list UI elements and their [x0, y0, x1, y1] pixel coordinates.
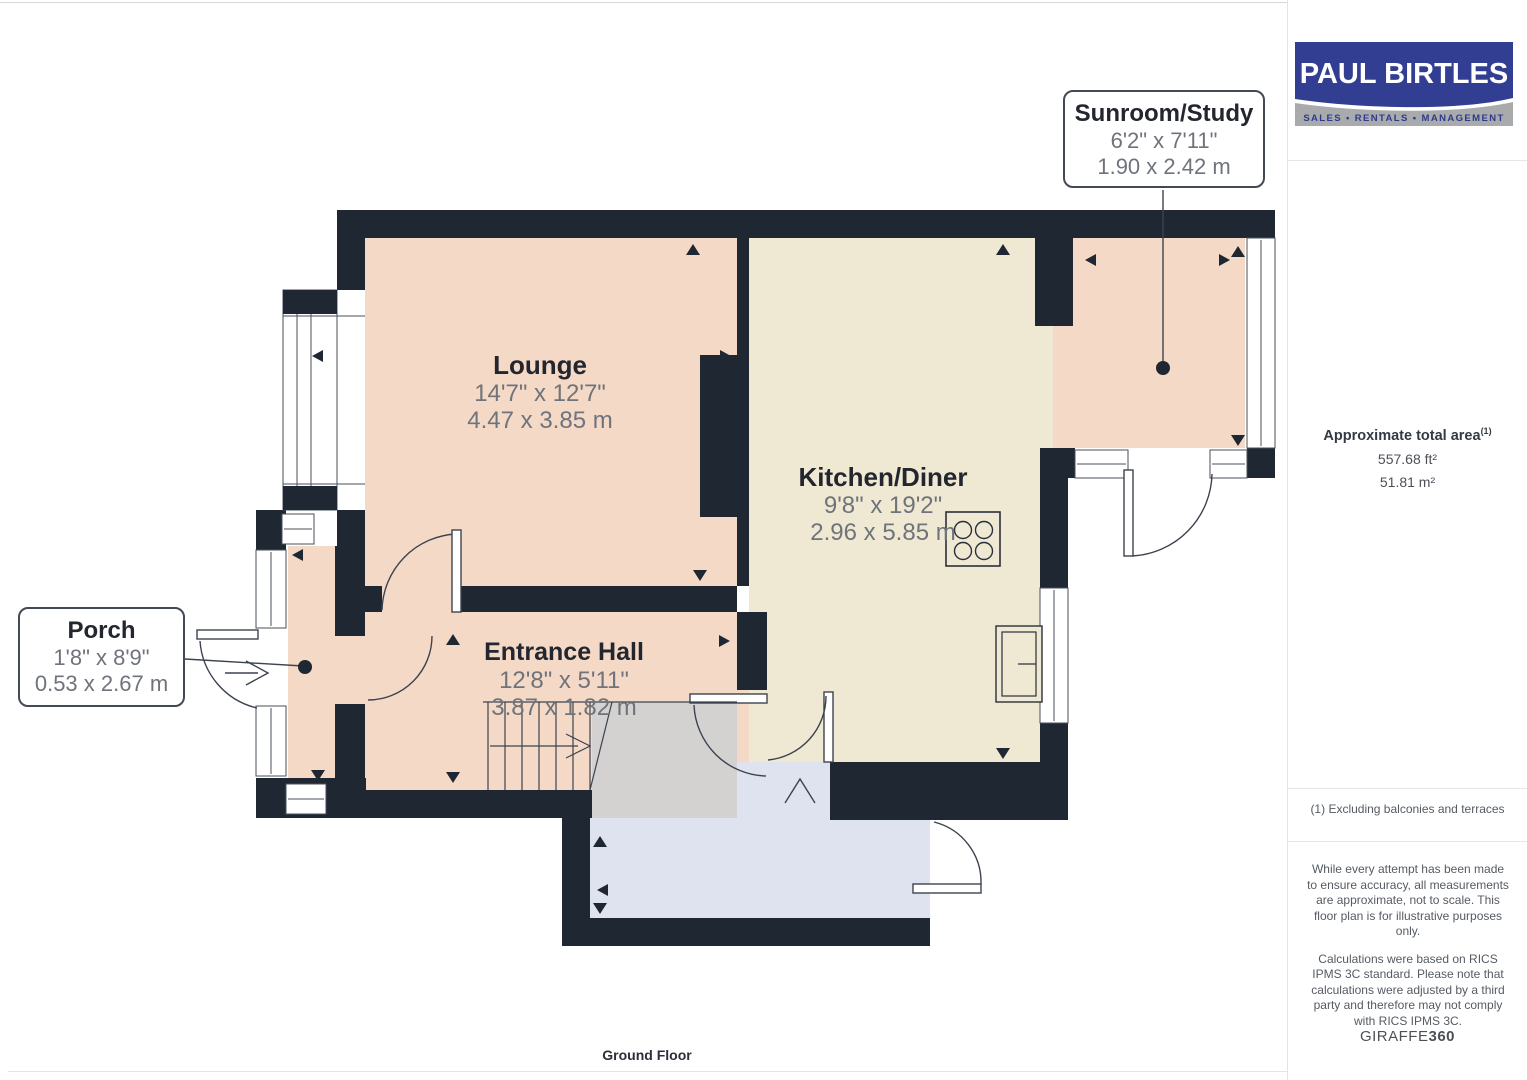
- agency-logo: PAUL BIRTLES SALES • RENTALS • MANAGEMEN…: [1295, 42, 1513, 126]
- wall: [335, 546, 365, 636]
- info-sidebar: PAUL BIRTLES SALES • RENTALS • MANAGEMEN…: [1287, 0, 1527, 1080]
- wall: [830, 762, 1068, 820]
- total-area-m: 51.81 m²: [1288, 474, 1527, 490]
- wall: [365, 586, 382, 612]
- total-area-block: Approximate total area(1) 557.68 ft² 51.…: [1288, 426, 1527, 490]
- wall: [562, 918, 930, 946]
- room-dim-imperial: 6'2" x 7'11": [1065, 128, 1263, 154]
- wall: [1035, 238, 1073, 326]
- bay-cap: [283, 290, 337, 314]
- callout-sunroom: Sunroom/Study 6'2" x 7'11" 1.90 x 2.42 m: [1063, 90, 1265, 188]
- sidebar-divider: [1288, 841, 1527, 842]
- sunroom-floor: [1053, 238, 1245, 448]
- bay-cap: [283, 486, 337, 510]
- area-footnote: (1) Excluding balconies and terraces: [1288, 802, 1527, 816]
- floorplan-page: Lounge 14'7" x 12'7" 4.47 x 3.85 m Kitch…: [0, 0, 1527, 1080]
- total-area-ft: 557.68 ft²: [1288, 451, 1527, 467]
- rear-threshold: [737, 762, 830, 818]
- porch-floor: [288, 546, 335, 778]
- wall: [337, 210, 1275, 238]
- disclaimer-paragraph: Calculations were based on RICS IPMS 3C …: [1306, 952, 1510, 1030]
- porch-leader-dot: [298, 660, 312, 674]
- porch-leader-line: [185, 659, 303, 666]
- plan-bottom-divider: [8, 1071, 1287, 1072]
- giraffe360-watermark: GIRAFFE360: [1288, 1028, 1527, 1045]
- lounge-floor: [365, 238, 737, 586]
- wall: [335, 704, 365, 790]
- door-arc: [1132, 474, 1212, 556]
- sidebar-divider: [1288, 160, 1527, 161]
- giraffe360-bold: 360: [1428, 1028, 1455, 1045]
- door-leaf: [913, 884, 981, 893]
- wall: [337, 790, 592, 818]
- wall: [1040, 723, 1068, 762]
- door-arc: [934, 822, 981, 884]
- room-dim-metric: 1.90 x 2.42 m: [1065, 154, 1263, 180]
- logo-text: PAUL BIRTLES: [1300, 58, 1508, 90]
- floor-label: Ground Floor: [497, 1047, 797, 1063]
- wall: [1247, 448, 1275, 478]
- chimney-breast: [700, 355, 749, 517]
- giraffe360-regular: GIRAFFE: [1360, 1028, 1429, 1045]
- room-dim-imperial: 1'8" x 8'9": [20, 645, 183, 671]
- sidebar-divider: [1288, 788, 1527, 789]
- stairs-landing: [592, 702, 737, 818]
- disclaimer-block: While every attempt has been made to ens…: [1306, 862, 1510, 1041]
- door-leaf: [1124, 470, 1133, 556]
- wall: [337, 238, 365, 290]
- room-name: Sunroom/Study: [1065, 100, 1263, 128]
- wall: [460, 586, 737, 612]
- wall: [337, 510, 365, 546]
- total-area-title: Approximate total area(1): [1288, 426, 1527, 444]
- sunroom-leader-dot: [1156, 361, 1170, 375]
- total-area-footnote-ref: (1): [1481, 426, 1492, 436]
- room-dim-metric: 0.53 x 2.67 m: [20, 671, 183, 697]
- store-floor: [590, 818, 930, 918]
- hall-door-gap: [335, 636, 365, 704]
- wall: [737, 612, 767, 690]
- disclaimer-paragraph: While every attempt has been made to ens…: [1306, 862, 1510, 940]
- logo-tagline: SALES • RENTALS • MANAGEMENT: [1303, 113, 1504, 124]
- door-leaf: [452, 530, 461, 612]
- total-area-title-text: Approximate total area: [1323, 428, 1480, 444]
- door-leaf: [197, 630, 258, 639]
- door-arc: [200, 641, 257, 708]
- bay-window: [337, 290, 365, 510]
- callout-porch: Porch 1'8" x 8'9" 0.53 x 2.67 m: [18, 607, 185, 707]
- hob-icon: [946, 512, 1000, 566]
- wall: [1040, 448, 1075, 478]
- wall: [1040, 478, 1068, 588]
- bay-window: [283, 290, 337, 510]
- room-name: Porch: [20, 617, 183, 645]
